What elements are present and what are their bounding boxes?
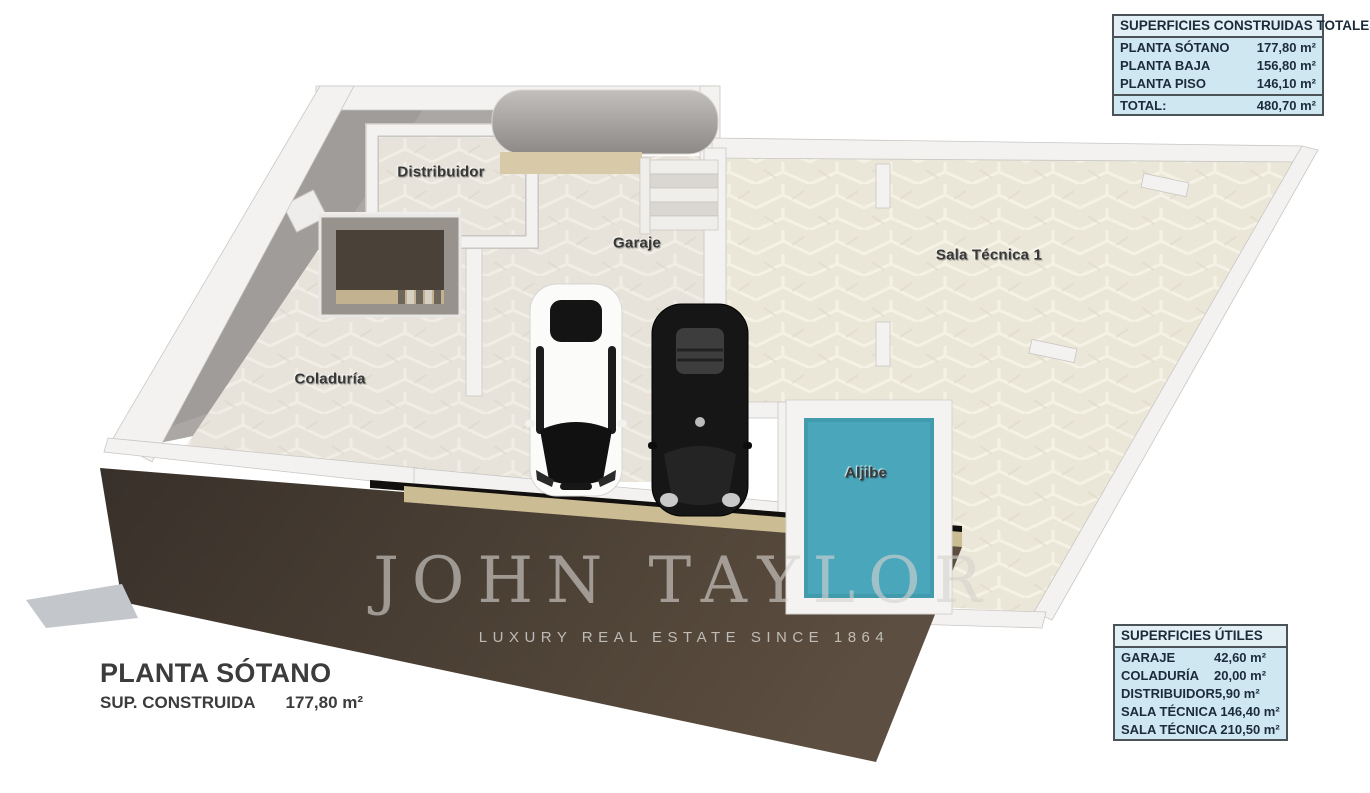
row-value: 146,10 m²	[1257, 76, 1316, 91]
white-car	[525, 284, 627, 496]
room-label-garaje: Garaje	[613, 235, 661, 252]
coladuria-garage-divider-wall	[466, 236, 482, 396]
row-value: 46,40 m²	[1228, 704, 1280, 719]
wall-stub	[876, 322, 890, 366]
row-label: DISTRIBUIDOR	[1121, 686, 1215, 701]
wall-stub	[876, 164, 890, 208]
room-label-sala-tecnica-1: Sala Técnica 1	[936, 247, 1042, 264]
row-label: GARAJE	[1121, 650, 1214, 665]
row-label: SALA TÉCNICA 2	[1121, 722, 1228, 737]
row-label: COLADURÍA	[1121, 668, 1214, 683]
total-label: TOTAL:	[1120, 98, 1257, 113]
table-row: GARAJE 42,60 m²	[1115, 648, 1286, 666]
built-areas-table: SUPERFICIES CONSTRUIDAS TOTALES PLANTA S…	[1112, 14, 1324, 116]
garage-steps	[640, 158, 718, 234]
usable-areas-table-title: SUPERFICIES ÚTILES	[1115, 626, 1286, 648]
curved-wall	[492, 90, 718, 154]
built-areas-table-title: SUPERFICIES CONSTRUIDAS TOTALES	[1114, 16, 1322, 38]
row-label: PLANTA BAJA	[1120, 58, 1257, 73]
row-value: 42,60 m²	[1214, 650, 1280, 665]
row-value: 156,80 m²	[1257, 58, 1316, 73]
row-label: PLANTA PISO	[1120, 76, 1257, 91]
black-car	[648, 304, 752, 516]
table-row: COLADURÍA 20,00 m²	[1115, 666, 1286, 684]
table-row: PLANTA PISO 146,10 m²	[1114, 74, 1322, 92]
ramp-shadow	[26, 584, 138, 628]
table-row: PLANTA SÓTANO 177,80 m²	[1114, 38, 1322, 56]
room-label-coladuria: Coladuría	[295, 371, 366, 388]
table-row: DISTRIBUIDOR 5,90 m²	[1115, 684, 1286, 702]
title-block: PLANTA SÓTANO SUP. CONSTRUIDA 177,80 m²	[100, 658, 363, 713]
table-row: PLANTA BAJA 156,80 m²	[1114, 56, 1322, 74]
table-row: SALA TÉCNICA 2 10,50 m²	[1115, 721, 1286, 739]
row-value: 10,50 m²	[1228, 722, 1280, 737]
built-area-label: SUP. CONSTRUIDA	[100, 693, 256, 713]
stair-steps	[398, 290, 441, 304]
aljibe-tank	[786, 400, 952, 614]
right-wing-top-wall	[712, 138, 1302, 162]
row-label: SALA TÉCNICA 1	[1121, 704, 1228, 719]
page: Distribuidor Garaje Sala Técnica 1 Colad…	[0, 0, 1370, 793]
row-value: 5,90 m²	[1215, 686, 1280, 701]
row-value: 177,80 m²	[1257, 40, 1316, 55]
row-label: PLANTA SÓTANO	[1120, 40, 1257, 55]
row-value: 20,00 m²	[1214, 668, 1280, 683]
stairwell	[320, 212, 460, 316]
room-label-distribuidor: Distribuidor	[397, 164, 484, 181]
room-label-aljibe: Aljibe	[845, 465, 887, 482]
total-value: 480,70 m²	[1257, 98, 1316, 113]
table-total-row: TOTAL: 480,70 m²	[1114, 94, 1322, 114]
usable-areas-table: SUPERFICIES ÚTILES GARAJE 42,60 m² COLAD…	[1113, 624, 1288, 741]
built-area-value: 177,80 m²	[286, 693, 364, 713]
plan-title: PLANTA SÓTANO	[100, 658, 363, 689]
table-row: SALA TÉCNICA 1 46,40 m²	[1115, 703, 1286, 721]
wall-niche	[500, 152, 642, 174]
